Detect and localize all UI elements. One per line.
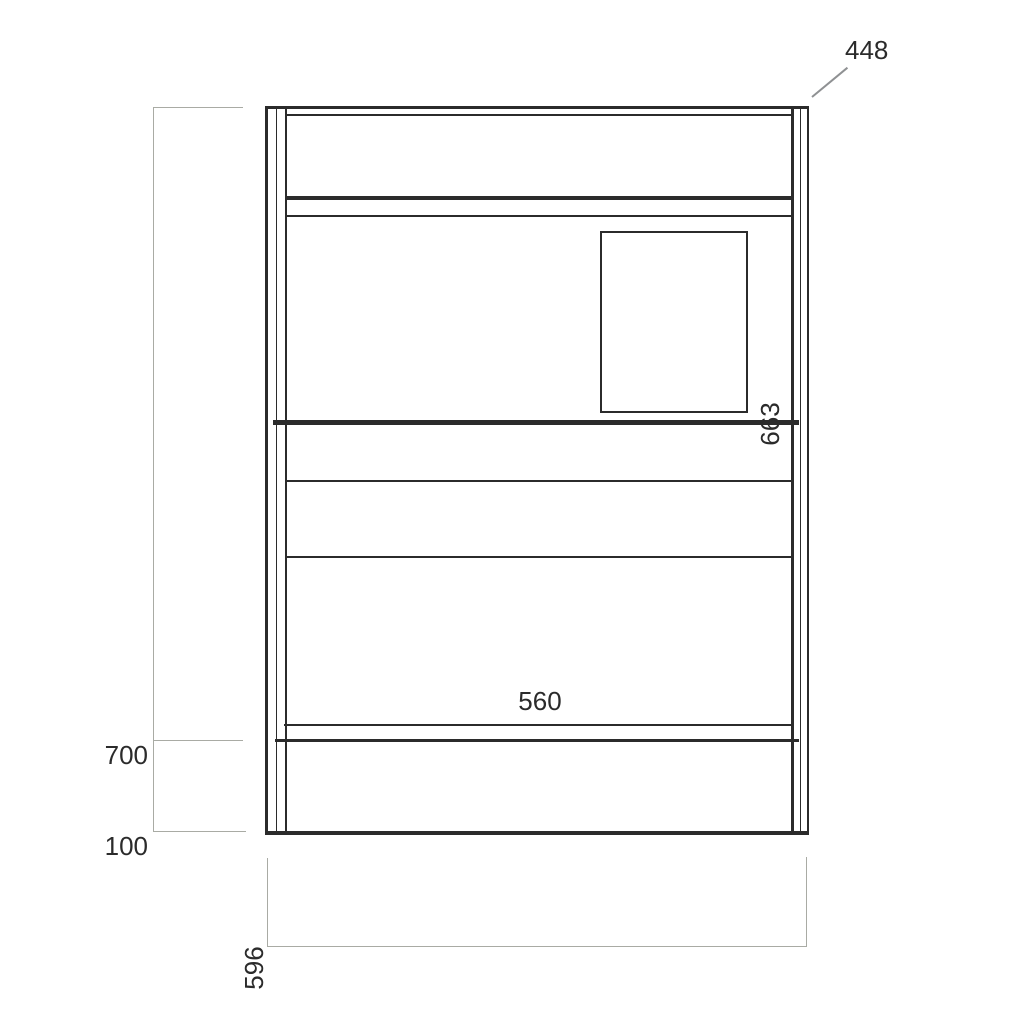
mid-front-line-lower bbox=[286, 556, 791, 558]
top-front-upper-line bbox=[286, 114, 791, 116]
bottom-dimension-horizontal-line bbox=[267, 946, 807, 947]
left-dimension-tick-top bbox=[153, 107, 243, 108]
upper-gap-line bbox=[286, 215, 791, 217]
bottom-dimension-extension-right bbox=[806, 857, 807, 947]
left-dimension-vertical-line bbox=[153, 108, 154, 832]
left-panel-mid-line bbox=[276, 109, 277, 832]
right-panel-mid-line bbox=[800, 109, 801, 832]
left-dimension-tick-100 bbox=[153, 831, 246, 832]
top-front-bottom-line bbox=[286, 196, 791, 200]
technical-drawing-canvas: 448 663 560 700 100 596 bbox=[0, 0, 1024, 1024]
left-dimension-tick-700 bbox=[153, 740, 243, 741]
right-panel-outer-edge-line bbox=[807, 106, 809, 832]
dim-label-596: 596 bbox=[240, 908, 268, 1024]
flush-plate-cutout-rectangle bbox=[600, 231, 748, 413]
lower-front-bottom-line bbox=[284, 724, 791, 726]
dim-label-663: 663 bbox=[756, 364, 784, 484]
left-panel-outer-edge-line bbox=[265, 106, 268, 834]
cabinet-top-edge-line bbox=[265, 106, 809, 109]
carcass-bottom-thick-line bbox=[275, 739, 799, 742]
mid-front-line-upper bbox=[286, 480, 791, 482]
dim-label-448: 448 bbox=[845, 36, 888, 64]
middle-divider-thick-line bbox=[273, 420, 799, 425]
dim-label-700: 700 bbox=[88, 741, 148, 769]
cabinet-bottom-edge-line bbox=[265, 831, 809, 835]
dim-label-100: 100 bbox=[88, 832, 148, 860]
dim-label-560: 560 bbox=[490, 687, 590, 715]
dim-448-leader-line bbox=[811, 67, 848, 98]
right-panel-inner-edge-line bbox=[791, 106, 794, 832]
